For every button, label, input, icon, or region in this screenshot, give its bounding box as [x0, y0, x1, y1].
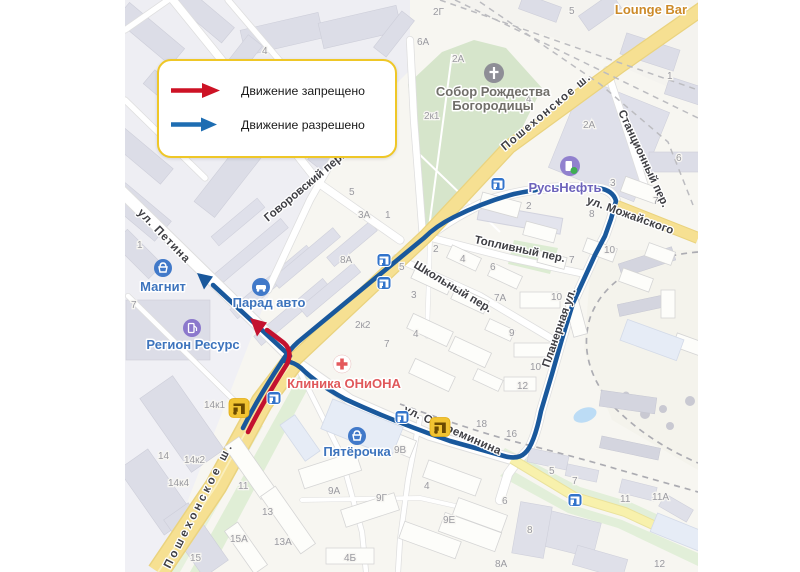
svg-text:15: 15 — [190, 553, 202, 564]
svg-text:11: 11 — [238, 481, 249, 492]
svg-text:13А: 13А — [274, 537, 292, 548]
svg-text:14: 14 — [158, 451, 170, 462]
svg-text:8А: 8А — [340, 255, 353, 266]
svg-text:1: 1 — [137, 240, 143, 251]
svg-text:Регион Ресурс: Регион Ресурс — [146, 337, 239, 352]
svg-text:5: 5 — [349, 187, 355, 198]
svg-text:14к2: 14к2 — [184, 455, 205, 466]
svg-text:3А: 3А — [358, 210, 371, 221]
svg-text:16: 16 — [506, 429, 518, 440]
svg-text:13: 13 — [262, 507, 274, 518]
svg-text:Богородицы: Богородицы — [452, 98, 534, 113]
svg-text:8А: 8А — [495, 559, 508, 570]
svg-text:2: 2 — [433, 244, 439, 255]
svg-text:8: 8 — [527, 525, 533, 536]
svg-text:9Г: 9Г — [376, 493, 388, 504]
svg-text:6А: 6А — [417, 37, 430, 48]
svg-text:2А: 2А — [452, 54, 465, 65]
svg-text:5: 5 — [399, 262, 405, 273]
svg-text:6: 6 — [676, 153, 682, 164]
svg-text:1: 1 — [667, 71, 673, 82]
svg-text:РусьНефть: РусьНефть — [529, 180, 602, 195]
svg-text:7: 7 — [572, 476, 578, 487]
svg-text:6: 6 — [490, 262, 496, 273]
svg-text:4: 4 — [413, 329, 419, 340]
svg-text:3: 3 — [411, 290, 417, 301]
svg-text:2А: 2А — [583, 120, 596, 131]
svg-text:9: 9 — [509, 328, 515, 339]
svg-text:1: 1 — [385, 210, 391, 221]
svg-text:5: 5 — [549, 466, 555, 477]
svg-text:2: 2 — [526, 201, 532, 212]
svg-text:Парад авто: Парад авто — [233, 295, 306, 310]
svg-text:7А: 7А — [494, 293, 507, 304]
svg-text:3: 3 — [610, 178, 616, 189]
svg-text:4: 4 — [460, 254, 466, 265]
svg-text:7: 7 — [569, 255, 575, 266]
svg-text:7: 7 — [384, 339, 390, 350]
svg-text:2к2: 2к2 — [355, 320, 371, 331]
svg-text:12: 12 — [517, 381, 529, 392]
svg-text:10: 10 — [530, 362, 542, 373]
svg-text:6: 6 — [502, 496, 508, 507]
svg-text:Lounge Bar: Lounge Bar — [615, 2, 687, 17]
svg-text:9А: 9А — [328, 486, 341, 497]
svg-text:9Е: 9Е — [443, 515, 456, 526]
svg-text:Собор Рождества: Собор Рождества — [436, 84, 551, 99]
svg-text:4: 4 — [424, 481, 430, 492]
svg-text:7: 7 — [131, 300, 137, 311]
svg-text:2к1: 2к1 — [424, 111, 440, 122]
svg-text:15А: 15А — [230, 534, 248, 545]
svg-text:2Г: 2Г — [433, 7, 445, 18]
svg-text:Клиника ОНиОНА: Клиника ОНиОНА — [287, 376, 401, 391]
svg-text:9В: 9В — [394, 445, 407, 456]
svg-text:11А: 11А — [652, 492, 669, 503]
svg-text:14к1: 14к1 — [204, 400, 225, 411]
svg-text:18: 18 — [476, 419, 488, 430]
svg-text:14к4: 14к4 — [168, 478, 189, 489]
svg-text:12: 12 — [654, 559, 666, 570]
svg-text:11: 11 — [620, 494, 631, 505]
svg-text:Пятёрочка: Пятёрочка — [323, 444, 391, 459]
svg-text:10: 10 — [604, 245, 616, 256]
svg-text:Магнит: Магнит — [140, 279, 186, 294]
svg-text:10: 10 — [551, 292, 563, 303]
svg-text:7: 7 — [653, 196, 659, 207]
svg-text:8: 8 — [589, 209, 595, 220]
svg-text:4Б: 4Б — [344, 553, 357, 564]
svg-text:4: 4 — [262, 46, 268, 57]
svg-text:5: 5 — [569, 6, 575, 17]
